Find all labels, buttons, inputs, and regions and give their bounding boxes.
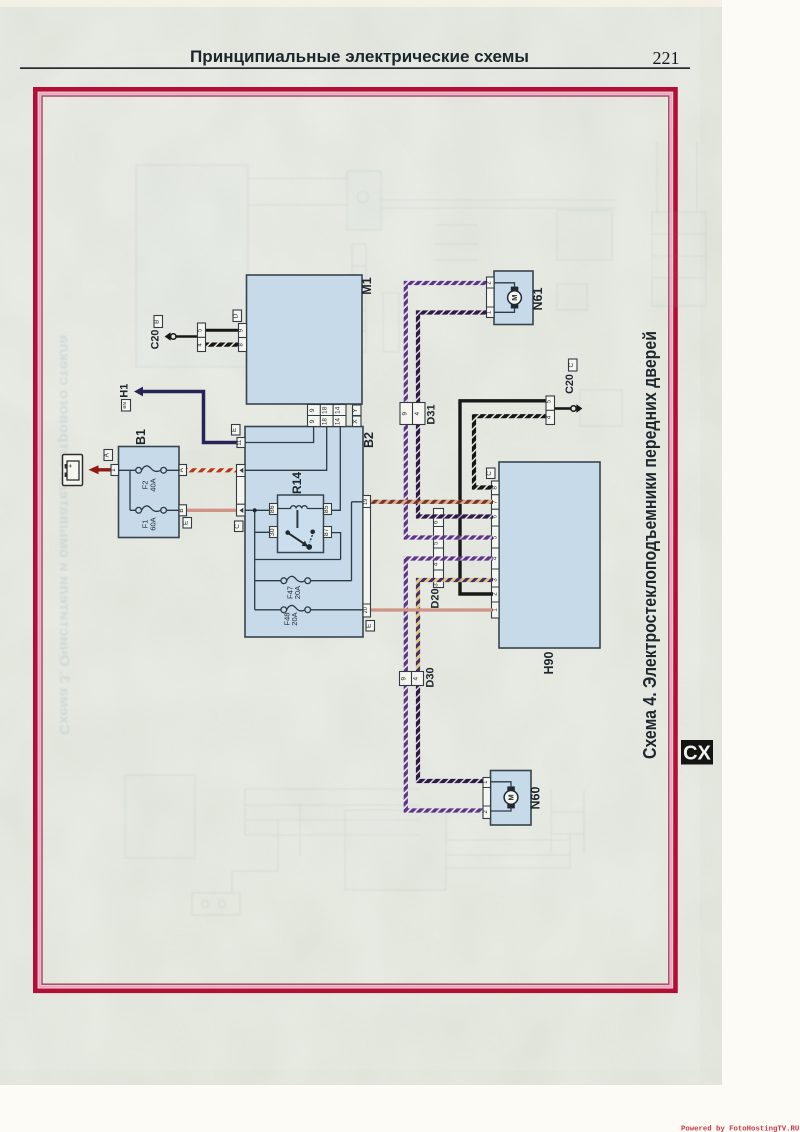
svg-text:7: 7	[492, 500, 499, 504]
svg-text:H90: H90	[542, 651, 556, 674]
svg-text:A: A	[103, 452, 110, 457]
svg-text:R14: R14	[290, 472, 304, 494]
svg-text:8: 8	[238, 343, 245, 347]
svg-text:D20: D20	[430, 588, 442, 608]
svg-text:BN: BN	[122, 402, 127, 408]
svg-text:30: 30	[269, 528, 276, 536]
svg-text:E: E	[231, 428, 238, 432]
svg-text:CX: CX	[683, 743, 711, 765]
svg-text:B2: B2	[362, 432, 376, 448]
svg-text:B: B	[153, 320, 160, 324]
svg-text:4: 4	[433, 562, 440, 566]
svg-text:1: 1	[110, 468, 117, 472]
svg-text:5: 5	[433, 541, 440, 545]
svg-text:4: 4	[414, 411, 421, 415]
svg-text:14: 14	[335, 406, 342, 414]
svg-text:20: 20	[363, 607, 369, 613]
svg-text:20A: 20A	[293, 586, 302, 599]
svg-text:18: 18	[322, 418, 329, 426]
svg-text:5: 5	[197, 328, 204, 332]
svg-text:9: 9	[401, 411, 408, 415]
svg-text:N61: N61	[531, 287, 545, 310]
svg-text:3: 3	[433, 583, 440, 587]
svg-text:D: D	[233, 313, 240, 318]
svg-text:5: 5	[492, 535, 499, 539]
svg-text:C20: C20	[564, 374, 576, 394]
svg-text:H1: H1	[119, 384, 131, 398]
svg-text:86: 86	[269, 505, 276, 513]
svg-text:6: 6	[492, 514, 499, 518]
svg-text:C20: C20	[150, 330, 162, 350]
svg-text:Принципиальные электрические с: Принципиальные электрические схемы	[190, 47, 529, 66]
svg-text:9: 9	[401, 676, 408, 680]
svg-text:C: C	[568, 363, 575, 368]
svg-text:Y: Y	[352, 408, 359, 413]
svg-text:C: C	[234, 524, 241, 529]
svg-text:4: 4	[492, 556, 499, 560]
svg-text:11: 11	[237, 440, 243, 446]
svg-text:M: M	[506, 794, 515, 800]
svg-text:221: 221	[653, 48, 680, 68]
svg-text:4: 4	[545, 415, 552, 419]
svg-text:3: 3	[492, 578, 499, 582]
svg-text:M: M	[510, 295, 519, 301]
svg-text:18: 18	[322, 406, 329, 414]
svg-text:Схема 3. Очистители и омывател: Схема 3. Очистители и омыватели ветровог…	[57, 334, 72, 735]
svg-text:X: X	[352, 419, 359, 424]
svg-text:Powered by FotoHostingTV.RU: Powered by FotoHostingTV.RU	[681, 1126, 799, 1132]
svg-text:C: C	[486, 471, 493, 476]
svg-text:85: 85	[323, 505, 330, 513]
svg-text:14: 14	[335, 418, 342, 426]
svg-text:2: 2	[492, 592, 499, 596]
svg-text:5: 5	[545, 399, 552, 403]
svg-text:4: 4	[413, 676, 420, 680]
svg-text:8: 8	[492, 486, 499, 490]
svg-text:9: 9	[309, 419, 316, 423]
svg-text:M1: M1	[360, 277, 374, 294]
svg-text:D30: D30	[425, 667, 437, 687]
svg-text:Схема 4. Электростеклоподъемни: Схема 4. Электростеклоподъемники передни…	[639, 331, 660, 759]
svg-text:E: E	[365, 624, 372, 628]
svg-text:6: 6	[433, 520, 440, 524]
svg-text:+: +	[68, 464, 75, 468]
svg-text:9: 9	[309, 408, 316, 412]
svg-text:B1: B1	[134, 429, 148, 445]
svg-text:N60: N60	[529, 786, 543, 809]
svg-text:4: 4	[197, 343, 204, 347]
svg-text:40A: 40A	[149, 478, 158, 491]
svg-text:20A: 20A	[290, 612, 299, 625]
svg-text:60A: 60A	[149, 517, 158, 530]
svg-text:1: 1	[492, 608, 499, 612]
svg-text:9: 9	[238, 328, 245, 332]
svg-text:B: B	[178, 508, 185, 512]
svg-text:D31: D31	[426, 404, 438, 424]
svg-text:87: 87	[323, 528, 330, 536]
svg-text:E: E	[182, 521, 189, 525]
svg-text:19: 19	[363, 499, 369, 505]
